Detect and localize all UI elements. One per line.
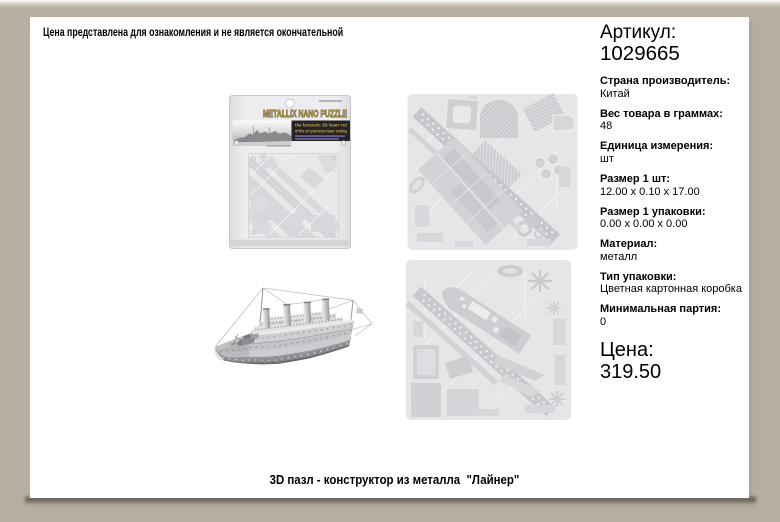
svg-text:METALLIX NANO PUZZLE: METALLIX NANO PUZZLE [263,109,347,120]
svg-text:the fantastic 3D laser cut: the fantastic 3D laser cut [295,123,347,128]
svg-text:of the art precision laser cut: of the art precision laser cutting [295,129,347,134]
